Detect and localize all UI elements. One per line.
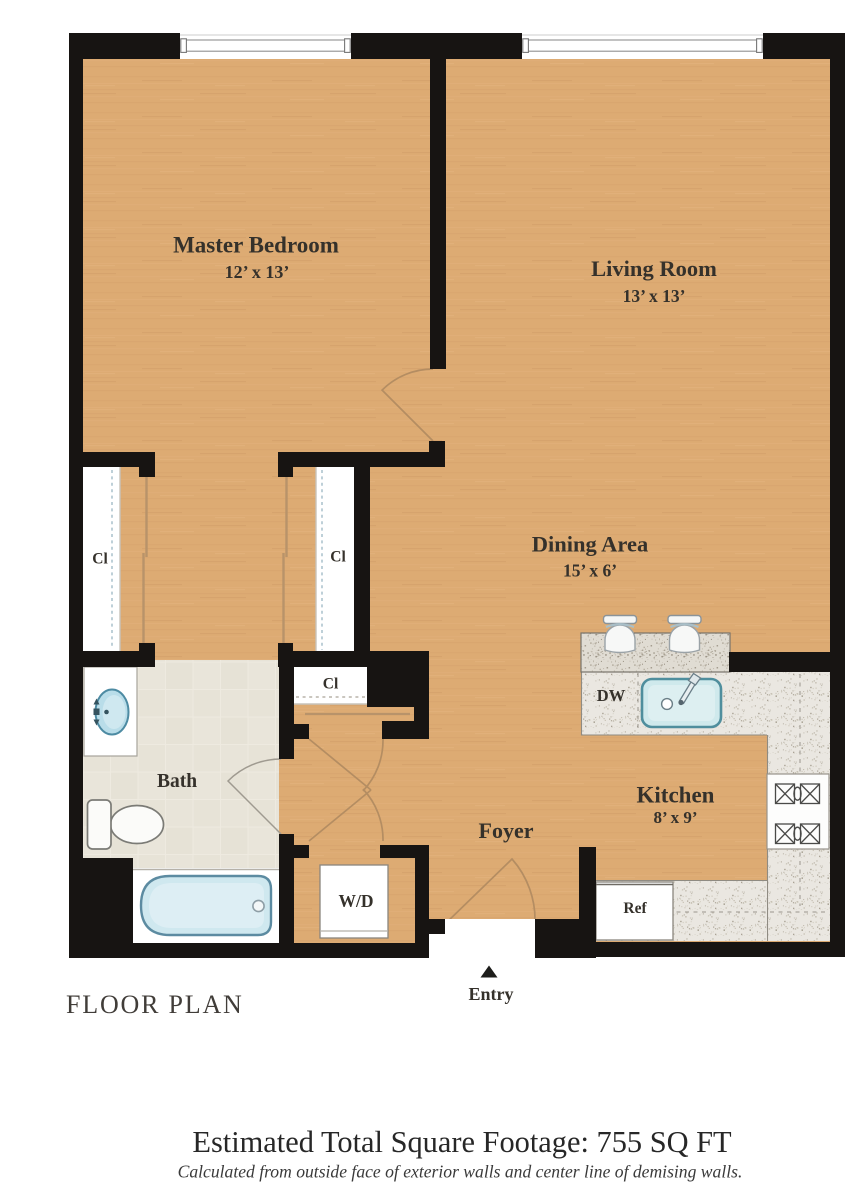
svg-text:Kitchen: Kitchen [637,783,715,808]
svg-text:8’ x 9’: 8’ x 9’ [653,808,697,827]
svg-text:Living Room: Living Room [591,256,717,281]
svg-text:Estimated Total Square Footage: Estimated Total Square Footage: 755 SQ F… [192,1125,732,1159]
svg-text:Ref: Ref [623,900,647,917]
svg-text:Entry: Entry [469,984,514,1004]
svg-text:Foyer: Foyer [479,818,534,843]
svg-text:12’ x 13’: 12’ x 13’ [225,262,290,282]
svg-text:W/D: W/D [339,891,374,911]
svg-text:13’ x 13’: 13’ x 13’ [623,286,686,306]
svg-text:Calculated from outside face o: Calculated from outside face of exterior… [178,1162,743,1182]
svg-text:Cl: Cl [323,676,339,693]
svg-text:FLOOR PLAN: FLOOR PLAN [66,990,244,1019]
svg-text:15’ x 6’: 15’ x 6’ [563,561,617,581]
svg-text:Cl: Cl [330,549,346,566]
svg-text:Master Bedroom: Master Bedroom [173,233,339,258]
svg-text:Dining Area: Dining Area [532,532,648,557]
svg-text:Bath: Bath [157,771,197,792]
svg-text:Cl: Cl [92,551,108,568]
svg-text:DW: DW [597,686,626,705]
